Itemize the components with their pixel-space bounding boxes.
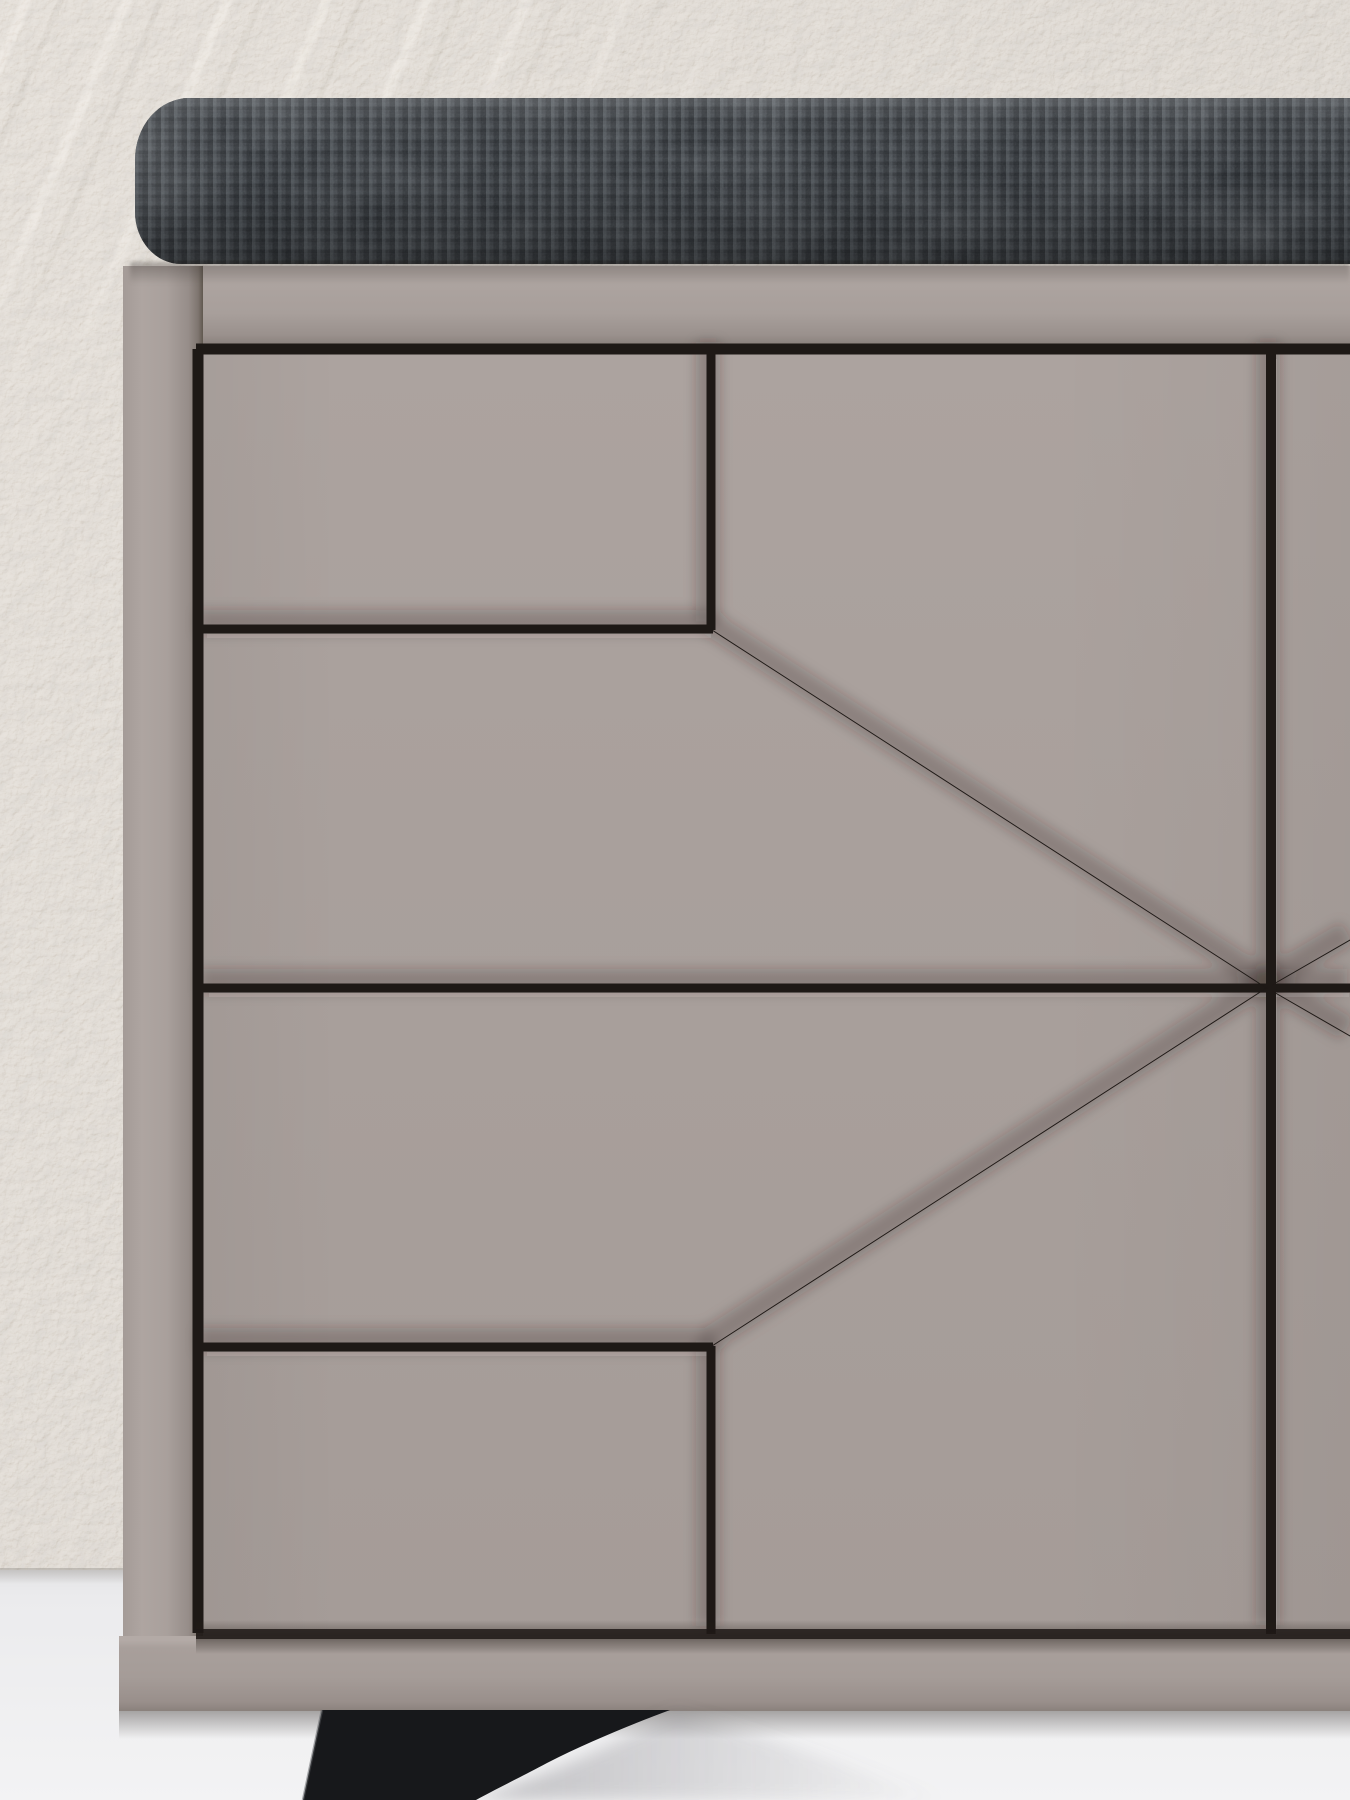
seat-cushion — [135, 98, 1350, 264]
groove-diag-upper-left — [712, 630, 1268, 989]
groove-highlights — [207, 359, 1349, 1635]
cushion-shading — [135, 98, 1350, 264]
cushion-contact-shadow — [130, 262, 1350, 284]
groove-diag-lower-left — [712, 987, 1268, 1346]
groove-lines — [196, 349, 1350, 1634]
scene — [0, 0, 1350, 1800]
